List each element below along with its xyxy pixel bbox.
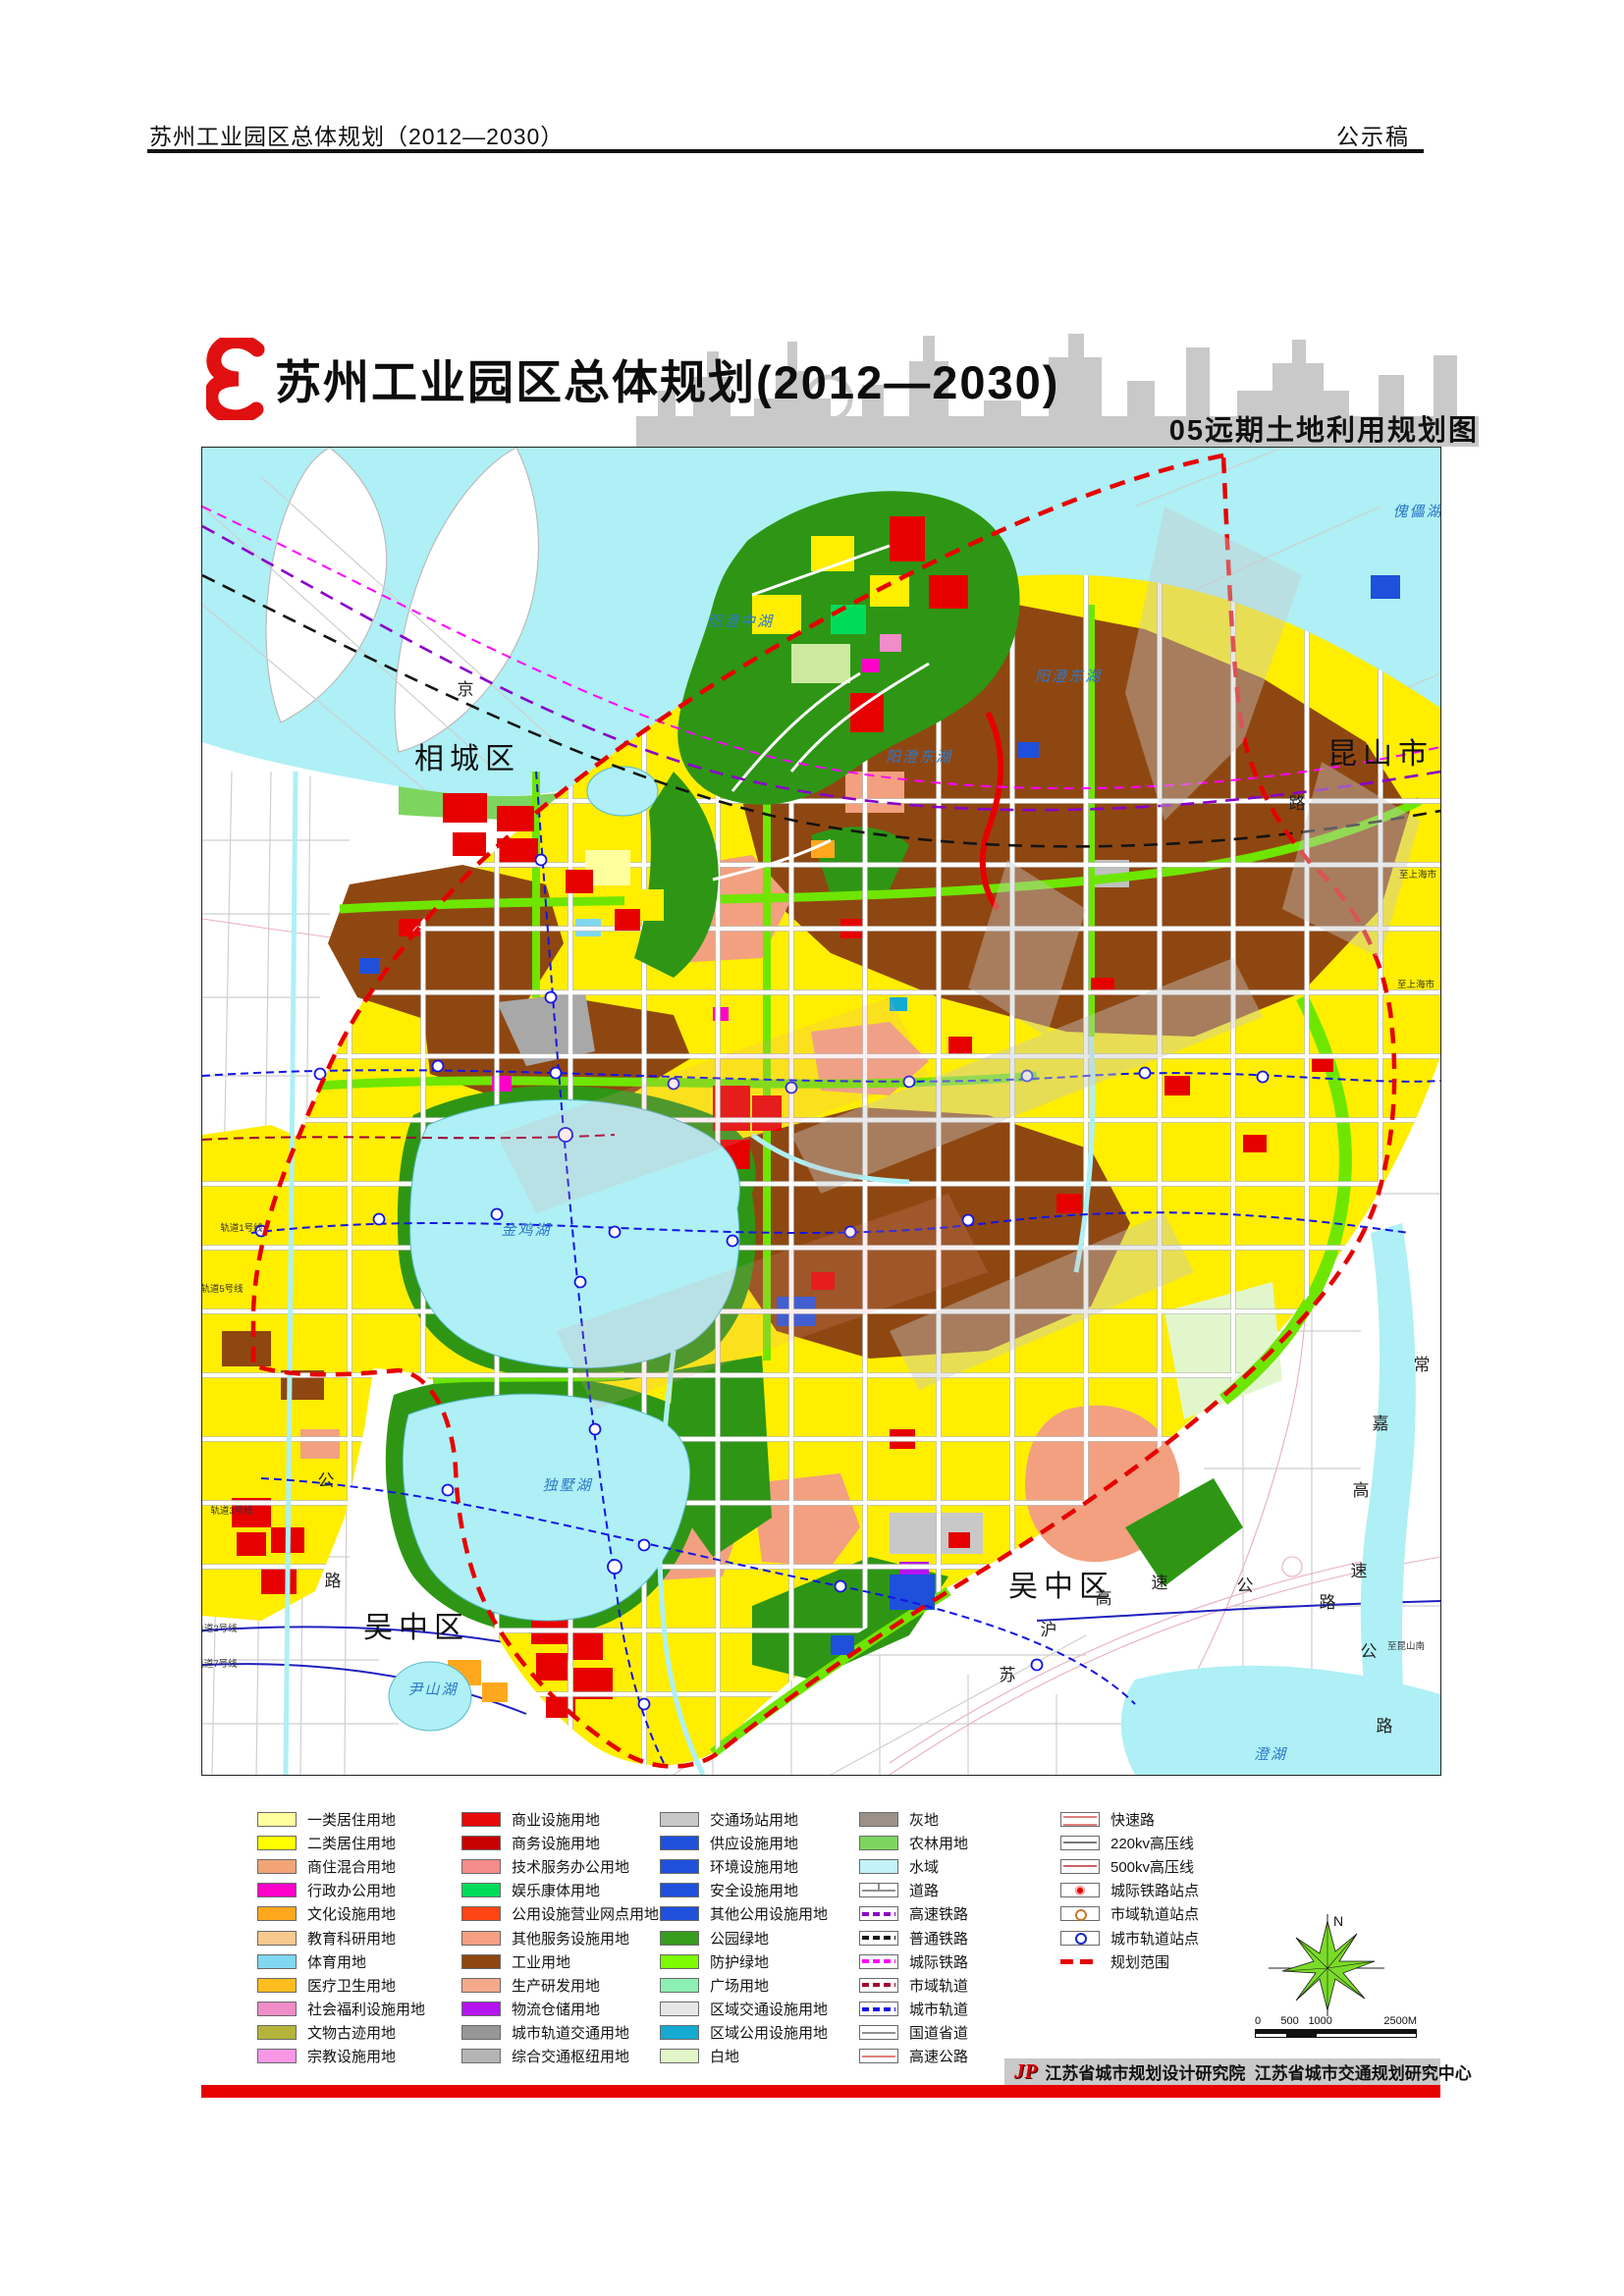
- header-status: 公示稿: [1336, 118, 1410, 151]
- map-label: 阳澄东湖: [1035, 668, 1102, 685]
- legend-swatch-fill: [660, 1906, 699, 1921]
- scale-bar-rule: [1255, 2029, 1417, 2038]
- legend-item: 高速公路: [859, 2045, 968, 2068]
- legend-item: 技术服务办公用地: [461, 1854, 659, 1878]
- legend-swatch-fill: [461, 1978, 501, 1993]
- map-label: 常: [1414, 1356, 1431, 1374]
- legend-swatch-line: [1060, 1836, 1100, 1850]
- legend-label: 其他公用设施用地: [710, 1903, 828, 1924]
- map-label: 尹山湖: [407, 1682, 458, 1698]
- legend-item: 国道省道: [859, 2021, 968, 2045]
- legend-item: 物流仓储用地: [461, 1998, 659, 2021]
- legend-swatch-dash: [859, 1931, 898, 1946]
- legend-swatch-dash: [859, 1906, 898, 1921]
- map-label: 速: [1351, 1562, 1368, 1580]
- legend-swatch-fill: [660, 1836, 699, 1850]
- legend-item: 农林用地: [859, 1831, 968, 1854]
- legend-swatch-fill: [660, 1812, 699, 1827]
- legend-label: 商业设施用地: [512, 1809, 600, 1830]
- legend-label: 文物古迹用地: [307, 2022, 396, 2043]
- legend-label: 城市轨道交通用地: [512, 2022, 629, 2043]
- legend-item: 公用设施营业网点用地: [461, 1902, 659, 1926]
- jp-logo-icon: JP: [1014, 2059, 1037, 2084]
- legend-label: 区域交通设施用地: [710, 1999, 828, 2019]
- legend-label: 工业用地: [512, 1951, 570, 1972]
- map-label: 阳澄中湖: [707, 614, 774, 630]
- legend-item: 其他服务设施用地: [461, 1926, 659, 1949]
- legend-item: 一类居住用地: [257, 1807, 425, 1831]
- legend-swatch-fill: [257, 1906, 297, 1921]
- compass-north-label: N: [1333, 1913, 1343, 1929]
- legend-column-5: 快速路220kv高压线500kv高压线城际铁路站点市域轨道站点城市轨道站点规划范…: [1060, 1807, 1199, 1973]
- legend-label: 供应设施用地: [710, 1833, 798, 1853]
- legend-label: 二类居住用地: [307, 1833, 396, 1853]
- legend-label: 公用设施营业网点用地: [512, 1903, 659, 1924]
- legend-swatch-line: [859, 2025, 898, 2040]
- map-title: 苏州工业园区总体规划(2012—2030): [275, 345, 1059, 412]
- map-label: 公: [1361, 1642, 1378, 1661]
- legend-label: 普通铁路: [909, 1928, 968, 1949]
- legend-swatch-fill: [660, 1859, 699, 1874]
- legend-label: 体育用地: [307, 1951, 366, 1972]
- map-label: 轨道3号线: [210, 1505, 253, 1517]
- map-label: 高: [1096, 1589, 1112, 1608]
- legend-swatch-fill: [257, 2049, 297, 2063]
- page-header: 苏州工业园区总体规划（2012—2030） 公示稿: [147, 116, 1424, 153]
- legend-label: 商务设施用地: [512, 1833, 600, 1853]
- legend-swatch-fill: [859, 1836, 898, 1850]
- sipac-logo-icon: [206, 338, 265, 420]
- legend-item: 体育用地: [257, 1949, 425, 1973]
- legend-swatch-station-filled: [1060, 1883, 1100, 1897]
- legend-swatch-dash: [859, 2002, 898, 2016]
- legend-swatch-fill: [859, 1812, 898, 1827]
- legend-swatch-fill: [257, 1931, 297, 1946]
- legend-item: 文化设施用地: [257, 1902, 425, 1926]
- legend-item: 行政办公用地: [257, 1879, 425, 1902]
- legend-swatch-fill: [257, 1836, 297, 1850]
- map-label: 吴中区: [363, 1612, 469, 1644]
- legend-item: 规划范围: [1060, 1949, 1199, 1973]
- page: 苏州工业园区总体规划（2012—2030） 公示稿 苏州工业园区总体规划(201…: [0, 0, 1624, 2296]
- legend-label: 安全设施用地: [710, 1880, 798, 1900]
- legend-swatch-fill: [461, 1883, 501, 1897]
- legend-item: 区域公用设施用地: [660, 2021, 828, 2045]
- legend-item: 白地: [660, 2045, 828, 2068]
- map-label: 轨道1号线: [220, 1222, 263, 1234]
- legend-label: 国道省道: [909, 2022, 968, 2043]
- legend-swatch-line: [1060, 1859, 1100, 1874]
- legend-item: 工业用地: [461, 1949, 659, 1973]
- legend-item: 城市轨道交通用地: [461, 2021, 659, 2045]
- legend-label: 灰地: [909, 1809, 939, 1830]
- legend-label: 高速铁路: [909, 1903, 968, 1924]
- legend-item: 市域轨道站点: [1060, 1902, 1199, 1926]
- map-label: 公: [318, 1471, 335, 1490]
- legend-swatch-fill: [461, 1859, 501, 1874]
- legend-label: 水域: [909, 1856, 939, 1877]
- legend-swatch-fill: [660, 1883, 699, 1897]
- map-label: 路: [1320, 1593, 1336, 1612]
- map-label: 高: [1353, 1481, 1370, 1500]
- legend-label: 娱乐康体用地: [512, 1880, 600, 1900]
- legend-label: 城市轨道: [909, 1999, 968, 2019]
- legend-label: 城际铁路站点: [1110, 1880, 1199, 1900]
- map-label: 速: [1152, 1574, 1168, 1592]
- legend-label: 区域公用设施用地: [710, 2022, 828, 2043]
- map-label: 独墅湖: [542, 1477, 592, 1494]
- legend-item: 城际铁路站点: [1060, 1879, 1199, 1902]
- legend-item: 城市轨道站点: [1060, 1926, 1199, 1949]
- legend-item: 娱乐康体用地: [461, 1879, 659, 1902]
- map-label: 公: [1237, 1576, 1254, 1595]
- legend-swatch-boundary: [1060, 1954, 1100, 1969]
- legend-item: 水域: [859, 1854, 968, 1878]
- footer-credit: 江苏省城市规划设计研究院 江苏省城市交通规划研究中心: [1045, 2059, 1471, 2084]
- legend-swatch-fill: [461, 1954, 501, 1969]
- legend-swatch-fill: [461, 1836, 501, 1850]
- legend-swatch-line: [859, 2049, 898, 2063]
- map-label: 澄湖: [1254, 1746, 1287, 1763]
- legend-column-4: 灰地农林用地水域道路高速铁路普通铁路城际铁路市域轨道城市轨道国道省道高速公路: [859, 1807, 968, 2068]
- compass-rose: N: [1267, 1912, 1392, 2022]
- legend-label: 技术服务办公用地: [512, 1856, 629, 1877]
- map-canvas: 相城区昆山市吴中区吴中区阳澄中湖阳澄东湖阳澄东湖金鸡湖独墅湖尹山湖澄湖傀儡湖常嘉…: [202, 448, 1440, 1775]
- legend-label: 综合交通枢纽用地: [512, 2046, 629, 2066]
- legend-item: 宗教设施用地: [257, 2045, 425, 2068]
- title-block: 苏州工业园区总体规划(2012—2030): [206, 332, 1059, 425]
- legend-label: 医疗卫生用地: [307, 1975, 396, 1996]
- legend-swatch-fill: [660, 1931, 699, 1946]
- legend-item: 安全设施用地: [660, 1879, 828, 1902]
- legend-item: 城际铁路: [859, 1949, 968, 1973]
- legend-swatch-fill: [859, 1859, 898, 1874]
- legend-item: 普通铁路: [859, 1926, 968, 1949]
- legend-item: 防护绿地: [660, 1949, 828, 1973]
- legend-label: 规划范围: [1110, 1951, 1169, 1972]
- legend-swatch-road: [859, 1883, 898, 1897]
- legend-item: 二类居住用地: [257, 1831, 425, 1854]
- legend-swatch-fill: [257, 2002, 297, 2016]
- legend-label: 物流仓储用地: [512, 1999, 600, 2019]
- map-label: 路: [1377, 1717, 1393, 1735]
- legend-swatch-line2: [1060, 1812, 1100, 1827]
- map-label: 轨道2号线: [202, 1623, 238, 1634]
- map-label: 至上海市: [1399, 869, 1437, 881]
- legend-label: 文化设施用地: [307, 1903, 396, 1924]
- scale-tick: 500: [1280, 2015, 1298, 2027]
- legend-item: 社会福利设施用地: [257, 1998, 425, 2021]
- footer-red-rule: [201, 2085, 1440, 2098]
- legend-swatch-fill: [257, 1812, 297, 1827]
- legend-item: 高速铁路: [859, 1902, 968, 1926]
- footer-bar: JP 江苏省城市规划设计研究院 江苏省城市交通规划研究中心: [1004, 2058, 1440, 2085]
- legend-label: 220kv高压线: [1110, 1833, 1194, 1853]
- legend-label: 高速公路: [909, 2046, 968, 2066]
- legend-label: 环境设施用地: [710, 1856, 798, 1877]
- legend-swatch-fill: [461, 2002, 501, 2016]
- legend-item: 快速路: [1060, 1807, 1199, 1831]
- legend-swatch-fill: [461, 1812, 501, 1827]
- legend-label: 城市轨道站点: [1110, 1928, 1199, 1949]
- legend-item: 城市轨道: [859, 1998, 968, 2021]
- map-label: 阳澄东湖: [886, 749, 952, 766]
- legend-item: 环境设施用地: [660, 1854, 828, 1878]
- land-use-map: 相城区昆山市吴中区吴中区阳澄中湖阳澄东湖阳澄东湖金鸡湖独墅湖尹山湖澄湖傀儡湖常嘉…: [201, 447, 1441, 1776]
- legend-label: 城际铁路: [909, 1951, 968, 1972]
- legend-swatch-fill: [660, 1978, 699, 1993]
- map-label: 金鸡湖: [501, 1222, 551, 1239]
- map-label: 轨道5号线: [202, 1283, 244, 1295]
- map-label: 苏: [1000, 1666, 1016, 1684]
- legend-swatch-fill: [660, 1954, 699, 1969]
- legend-item: 其他公用设施用地: [660, 1902, 828, 1926]
- legend-item: 生产研发用地: [461, 1973, 659, 1997]
- legend-swatch-fill: [660, 2025, 699, 2040]
- legend-swatch-dash: [859, 1978, 898, 1993]
- map-label: 轨道7号线: [202, 1658, 238, 1670]
- legend-label: 交通场站用地: [710, 1809, 798, 1830]
- legend-swatch-fill: [257, 1954, 297, 1969]
- map-label: 至上海市: [1397, 979, 1435, 990]
- legend-item: 市域轨道: [859, 1973, 968, 1997]
- legend-column-2: 商业设施用地商务设施用地技术服务办公用地娱乐康体用地公用设施营业网点用地其他服务…: [461, 1807, 659, 2068]
- map-label: 昆山市: [1327, 738, 1434, 771]
- legend-item: 供应设施用地: [660, 1831, 828, 1854]
- legend-swatch-fill: [660, 2002, 699, 2016]
- legend-swatch-fill: [257, 2025, 297, 2040]
- legend-label: 其他服务设施用地: [512, 1928, 629, 1949]
- legend-label: 广场用地: [710, 1975, 769, 1996]
- legend-item: 商务设施用地: [461, 1831, 659, 1854]
- legend-item: 交通场站用地: [660, 1807, 828, 1831]
- legend-swatch-fill: [461, 1906, 501, 1921]
- legend-label: 生产研发用地: [512, 1975, 600, 1996]
- legend-item: 区域交通设施用地: [660, 1998, 828, 2021]
- legend-swatch-fill: [257, 1883, 297, 1897]
- map-label: 相城区: [414, 743, 520, 775]
- legend-column-3: 交通场站用地供应设施用地环境设施用地安全设施用地其他公用设施用地公园绿地防护绿地…: [660, 1807, 828, 2068]
- legend-item: 道路: [859, 1879, 968, 1902]
- legend-swatch-fill: [461, 1931, 501, 1946]
- map-label: 傀儡湖: [1392, 504, 1440, 520]
- legend-item: 220kv高压线: [1060, 1831, 1199, 1854]
- map-subtitle: 05远期土地利用规划图: [1145, 407, 1479, 449]
- legend-column-1: 一类居住用地二类居住用地商住混合用地行政办公用地文化设施用地教育科研用地体育用地…: [257, 1807, 425, 2068]
- legend-item: 商住混合用地: [257, 1854, 425, 1878]
- map-label: 路: [325, 1572, 342, 1590]
- legend-swatch-station-ring: [1060, 1906, 1100, 1921]
- legend-label: 市域轨道: [909, 1975, 968, 1996]
- legend-item: 综合交通枢纽用地: [461, 2045, 659, 2068]
- legend-label: 一类居住用地: [307, 1809, 396, 1830]
- map-label: 京: [458, 680, 474, 699]
- header-title: 苏州工业园区总体规划（2012—2030）: [149, 118, 564, 151]
- map-label: 嘉: [1373, 1415, 1389, 1433]
- legend-label: 商住混合用地: [307, 1856, 396, 1877]
- legend-swatch-fill: [257, 1859, 297, 1874]
- legend-label: 白地: [710, 2046, 739, 2066]
- legend-swatch-dash: [859, 1954, 898, 1969]
- scale-tick: 0: [1255, 2015, 1261, 2027]
- scale-tick: 1000: [1308, 2015, 1331, 2027]
- legend-label: 500kv高压线: [1110, 1856, 1194, 1877]
- scale-bar: 0 500 1000 2500M: [1255, 2015, 1417, 2041]
- legend-item: 文物古迹用地: [257, 2021, 425, 2045]
- legend-swatch-station-ring: [1060, 1931, 1100, 1946]
- legend-swatch-fill: [461, 2049, 501, 2063]
- legend-swatch-fill: [660, 2049, 699, 2063]
- legend-label: 市域轨道站点: [1110, 1903, 1199, 1924]
- legend-label: 道路: [909, 1880, 939, 1900]
- legend-item: 商业设施用地: [461, 1807, 659, 1831]
- legend-item: 500kv高压线: [1060, 1854, 1199, 1878]
- legend-item: 广场用地: [660, 1973, 828, 1997]
- legend-label: 快速路: [1110, 1809, 1155, 1830]
- legend-swatch-fill: [461, 2025, 501, 2040]
- map-label: 至昆山南: [1387, 1640, 1425, 1652]
- legend-label: 社会福利设施用地: [307, 1999, 425, 2019]
- legend-swatch-fill: [257, 1978, 297, 1993]
- legend-item: 教育科研用地: [257, 1926, 425, 1949]
- legend-label: 宗教设施用地: [307, 2046, 396, 2066]
- legend-item: 医疗卫生用地: [257, 1973, 425, 1997]
- scale-tick: 2500M: [1383, 2015, 1417, 2027]
- legend-label: 教育科研用地: [307, 1928, 396, 1949]
- map-label: 路: [1289, 794, 1306, 813]
- map-label: 沪: [1041, 1621, 1057, 1639]
- legend-label: 防护绿地: [710, 1951, 769, 1972]
- legend-item: 公园绿地: [660, 1926, 828, 1949]
- legend-label: 行政办公用地: [307, 1880, 396, 1900]
- legend-label: 农林用地: [909, 1833, 968, 1853]
- legend-label: 公园绿地: [710, 1928, 769, 1949]
- legend-item: 灰地: [859, 1807, 968, 1831]
